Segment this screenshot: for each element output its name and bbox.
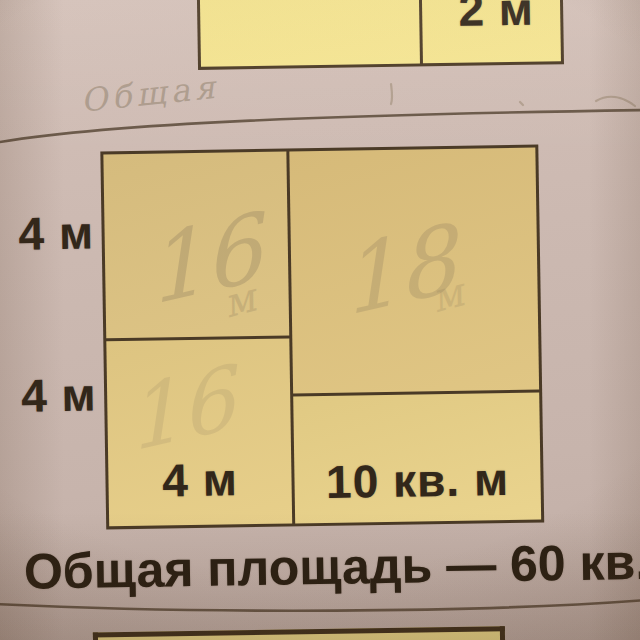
previous-exercise-figure: 2 м <box>196 0 564 70</box>
row-height-label-bottom: 4 м <box>21 367 122 423</box>
textbook-page-photo: 2 м Общая 16 м 16 4 м 18 м 10 кв. м 4 м <box>0 0 640 640</box>
diagram-cell-top-left: 16 м <box>103 152 289 339</box>
pencil-note: Общая <box>79 68 222 120</box>
previous-figure-left-cell <box>199 0 420 67</box>
previous-figure-width-label: 2 м <box>422 0 561 37</box>
previous-figure-right-cell: 2 м <box>421 0 561 63</box>
diagram-cell-bottom-right: 10 кв. м <box>293 393 541 524</box>
page-content: 2 м Общая 16 м 16 4 м 18 м 10 кв. м 4 м <box>0 0 640 640</box>
area-diagram: 16 м 16 4 м 18 м 10 кв. м <box>100 145 544 530</box>
bottom-left-width-label: 4 м <box>108 451 292 508</box>
diagram-cell-right: 18 м <box>289 148 539 394</box>
row-height-label-top: 4 м <box>18 205 119 261</box>
diagram-cell-bottom-left: 16 4 м <box>106 338 292 526</box>
total-area-caption: Общая площадь — 60 кв. <box>23 533 640 601</box>
next-exercise-figure <box>93 626 505 640</box>
bottom-right-area-label: 10 кв. м <box>294 452 541 510</box>
pencil-answer-bottom-left-erased: 16 <box>123 354 237 465</box>
